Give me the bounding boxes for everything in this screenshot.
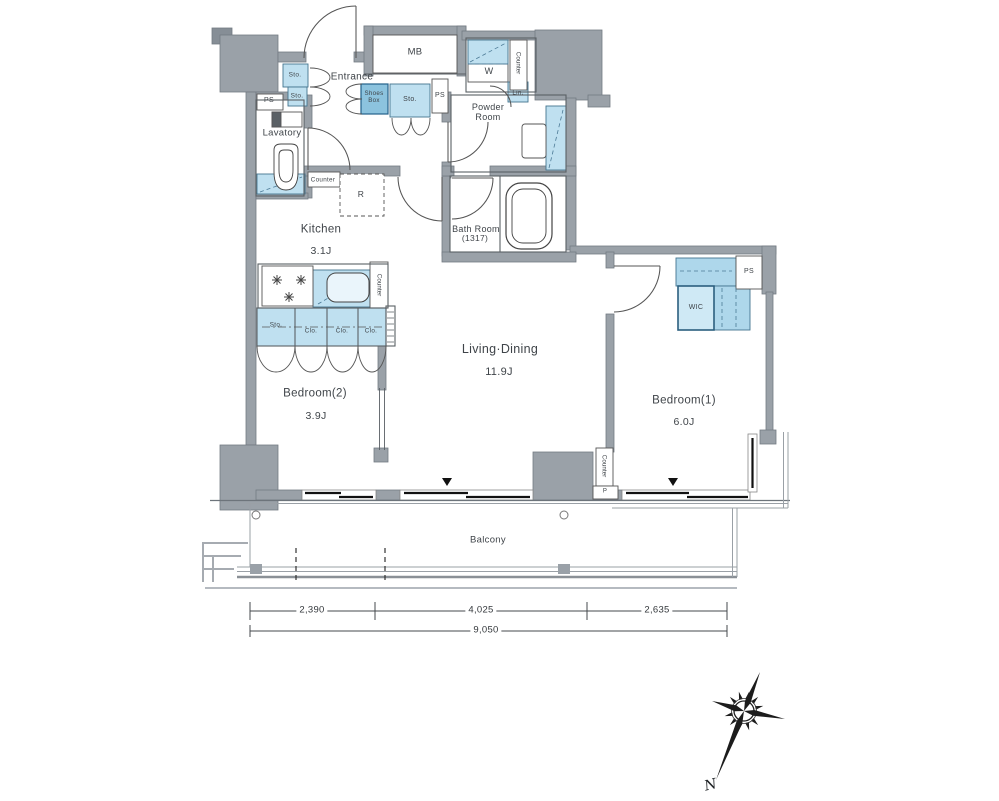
balcony-structure bbox=[202, 432, 790, 588]
wic-shelf bbox=[714, 286, 750, 330]
window-frame bbox=[622, 490, 750, 500]
counter-label: Counter bbox=[375, 274, 382, 296]
bedroom2-label: Bedroom(2) bbox=[283, 388, 347, 401]
window-sash bbox=[305, 438, 753, 497]
meter-box-label: MB bbox=[408, 48, 423, 59]
living-dining-label: Living·Dining bbox=[462, 342, 538, 356]
storage-label: Sto. bbox=[289, 71, 302, 78]
linen-label: Lin. bbox=[512, 89, 523, 96]
pipe-space-label: PS bbox=[264, 97, 274, 105]
rail-post bbox=[558, 564, 570, 574]
window-frame bbox=[302, 490, 376, 500]
powder-room-label: Powder Room bbox=[463, 102, 513, 122]
pillar-top-left bbox=[220, 35, 278, 92]
storage-label: Sto. bbox=[270, 321, 282, 328]
dimension-seg2: 4,025 bbox=[465, 606, 496, 617]
rail-post bbox=[250, 564, 262, 574]
shoes-box-label: Shoes Box bbox=[361, 91, 387, 105]
dimension-total: 9,050 bbox=[470, 626, 501, 637]
refrigerator-label: R bbox=[358, 190, 364, 200]
washer-top bbox=[468, 40, 508, 64]
counter-label: Counter bbox=[600, 455, 607, 477]
pillar-label: P bbox=[603, 489, 607, 496]
door-mark bbox=[442, 478, 452, 486]
bedroom1-size-label: 6.0J bbox=[673, 417, 694, 429]
pipe-space-label: PS bbox=[435, 92, 445, 100]
bedroom1-label: Bedroom(1) bbox=[652, 395, 716, 408]
wic-label: WIC bbox=[689, 304, 704, 312]
storage-label: Sto. bbox=[291, 92, 304, 99]
counter-label: Counter bbox=[514, 52, 521, 74]
wic-shelf bbox=[676, 258, 736, 286]
powder-sink bbox=[522, 124, 546, 158]
closet-label: Clo. bbox=[305, 327, 317, 334]
kitchen-sink bbox=[327, 273, 369, 302]
counter-label: Counter bbox=[311, 176, 336, 183]
sliding-door bbox=[380, 388, 385, 450]
pillar-top-right bbox=[535, 30, 602, 100]
kitchen-size-label: 3.1J bbox=[310, 246, 331, 258]
closet-label: Clo. bbox=[336, 327, 348, 334]
washer-label: W bbox=[485, 66, 494, 76]
lavatory-label: Lavatory bbox=[263, 129, 302, 140]
wall-cabinet-handle bbox=[272, 112, 281, 127]
kitchen-label: Kitchen bbox=[301, 224, 341, 237]
stove-base bbox=[262, 266, 313, 306]
living-size-label: 11.9J bbox=[485, 366, 513, 378]
pillar-bottom-center bbox=[533, 452, 593, 500]
storage-label: Sto. bbox=[403, 96, 417, 104]
balcony-label: Balcony bbox=[470, 536, 506, 547]
dimension-seg1: 2,390 bbox=[296, 606, 327, 617]
drain-symbol bbox=[252, 511, 260, 519]
balcony-rail bbox=[205, 508, 737, 588]
entrance-label: Entrance bbox=[331, 71, 373, 82]
pipe-space-label: PS bbox=[744, 268, 754, 276]
windows bbox=[302, 434, 757, 500]
bath-size-label: (1317) bbox=[462, 234, 488, 244]
north-label: N bbox=[703, 777, 719, 795]
dimension-seg3: 2,635 bbox=[641, 606, 672, 617]
floor-plan: Entrance MB W Counter Lin. Powder Room P… bbox=[0, 0, 999, 801]
drain-symbol bbox=[560, 511, 568, 519]
window-frame bbox=[400, 490, 533, 500]
door-mark bbox=[668, 478, 678, 486]
bedroom2-size-label: 3.9J bbox=[305, 411, 326, 423]
closet-label: Clo. bbox=[365, 327, 377, 334]
compass-icon bbox=[712, 672, 785, 780]
